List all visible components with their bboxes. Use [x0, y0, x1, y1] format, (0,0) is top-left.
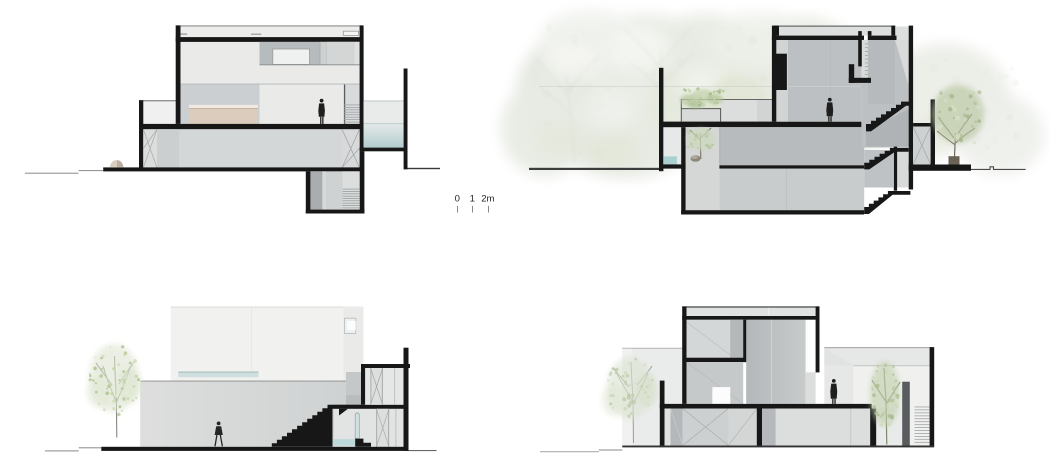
svg-text:1: 1: [470, 194, 475, 205]
svg-text:2m: 2m: [481, 194, 494, 205]
svg-text:0: 0: [455, 194, 460, 205]
